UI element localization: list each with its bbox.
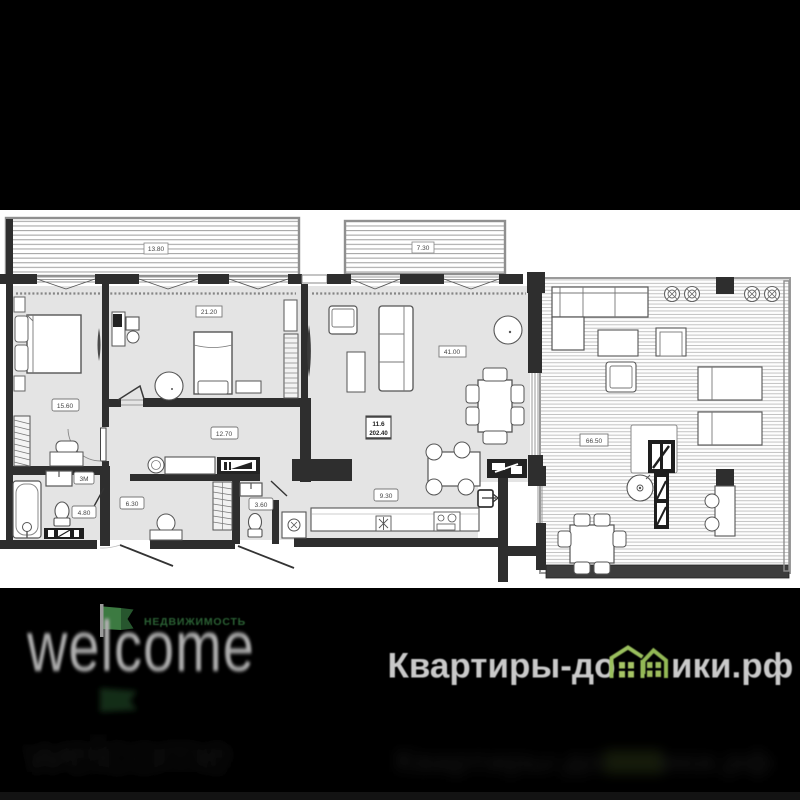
svg-text:4.80: 4.80 — [78, 510, 91, 517]
svg-text:welcome: welcome — [26, 607, 255, 687]
svg-text:welcome: welcome — [25, 726, 231, 784]
svg-text:41.00: 41.00 — [444, 349, 461, 356]
svg-text:Квартиры-до: Квартиры-до — [395, 743, 603, 779]
svg-text:12.70: 12.70 — [216, 431, 233, 438]
svg-text:13.80: 13.80 — [148, 246, 165, 253]
svg-text:21.20: 21.20 — [201, 309, 218, 316]
svg-text:7.30: 7.30 — [417, 245, 430, 252]
svg-text:66.50: 66.50 — [586, 438, 603, 445]
svg-text:3M: 3M — [79, 476, 88, 483]
svg-text:ики.рф: ики.рф — [671, 647, 793, 686]
svg-text:202.40: 202.40 — [369, 431, 388, 437]
svg-text:ики.рф: ики.рф — [660, 743, 772, 779]
svg-text:6.30: 6.30 — [126, 501, 139, 508]
svg-text:Квартиры-до: Квартиры-до — [388, 647, 616, 686]
svg-text:3.60: 3.60 — [255, 502, 268, 509]
svg-text:11.6: 11.6 — [372, 421, 385, 428]
svg-text:9.30: 9.30 — [380, 493, 393, 500]
svg-text:15.60: 15.60 — [57, 403, 74, 410]
